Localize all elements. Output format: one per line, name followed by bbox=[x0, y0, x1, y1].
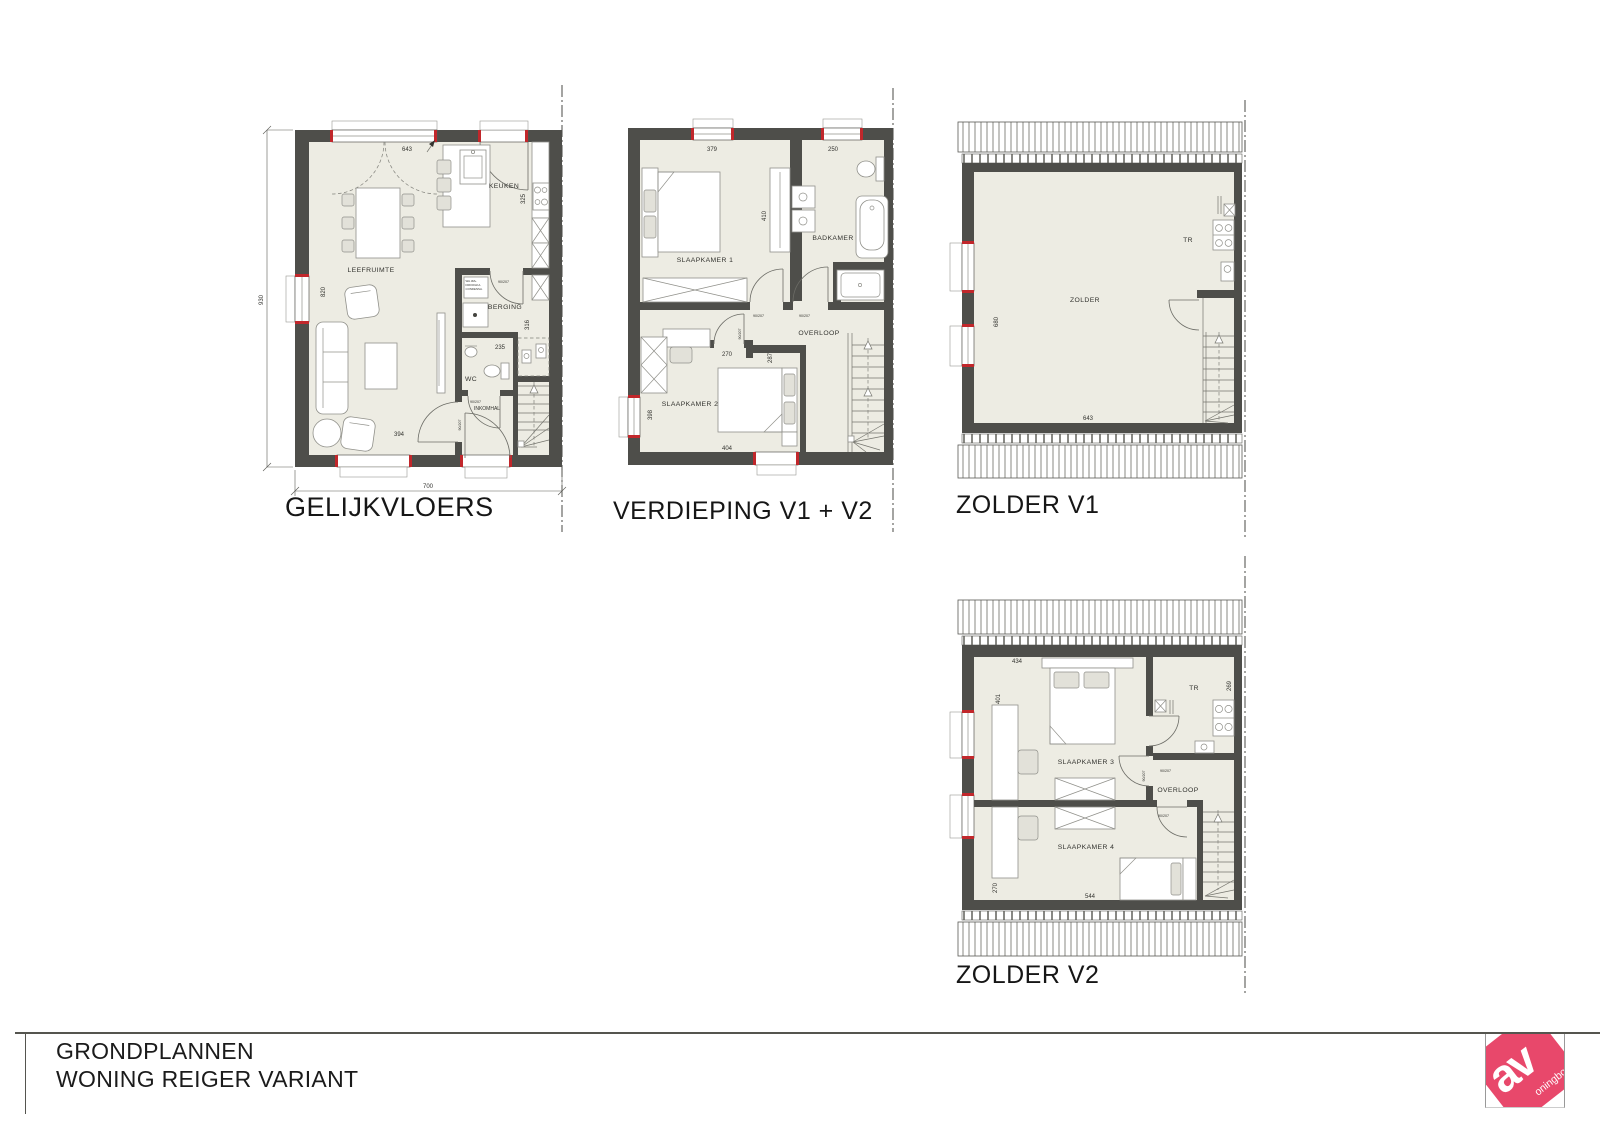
dim-325: 325 bbox=[521, 193, 527, 204]
door-size-label: 90/207 bbox=[753, 314, 764, 318]
room-label-slaapkamer1: SLAAPKAMER 1 bbox=[677, 257, 734, 264]
room-label-berging: BERGING bbox=[488, 304, 522, 311]
plan-title-zolder-v2: ZOLDER V2 bbox=[956, 961, 1099, 990]
logo-diamond: av oningbo bbox=[1485, 1034, 1565, 1108]
sheet-title: GRONDPLANNEN bbox=[56, 1038, 254, 1065]
door-size-label: 90/207 bbox=[1142, 771, 1146, 782]
dim-270: 270 bbox=[993, 882, 999, 893]
room-label-tr: TR bbox=[1183, 237, 1193, 244]
floor-plan-zolder-v1: ZOLDER TR 680 643 bbox=[945, 95, 1250, 545]
door-size-label: 90/207 bbox=[799, 314, 810, 318]
room-label-wc: WC bbox=[465, 376, 477, 383]
room-label-slaapkamer3: SLAAPKAMER 3 bbox=[1058, 759, 1115, 766]
plan-title-zolder-v1: ZOLDER V1 bbox=[956, 491, 1099, 520]
room-label-leefruimte: LEEFRUIMTE bbox=[347, 267, 394, 274]
dim-643: 643 bbox=[402, 147, 413, 153]
dim-434: 434 bbox=[1012, 659, 1023, 665]
room-label-inkomhal: INKOMHAL bbox=[474, 406, 500, 412]
door-size-label: 90/207 bbox=[458, 420, 462, 431]
door-size-label: 90/207 bbox=[1160, 769, 1171, 773]
dim-680: 680 bbox=[994, 316, 1000, 327]
room-label-tr: TR bbox=[1189, 685, 1199, 692]
slaapkamer4-furniture bbox=[1120, 858, 1196, 900]
dim-398: 398 bbox=[648, 409, 654, 420]
dim-401: 401 bbox=[996, 693, 1002, 704]
dim-316: 316 bbox=[525, 319, 531, 330]
dim-235: 235 bbox=[495, 345, 506, 351]
dim-544: 544 bbox=[1085, 894, 1096, 900]
dim-379: 379 bbox=[707, 147, 718, 153]
dim-287: 287 bbox=[768, 352, 774, 363]
plan-title-verdieping: VERDIEPING V1 + V2 bbox=[613, 497, 873, 526]
room-label-slaapkamer2: SLAAPKAMER 2 bbox=[662, 401, 719, 408]
drawing-sheet: LEEFRUIMTE KEUKEN BERGING WC INKOMHAL 64… bbox=[0, 0, 1600, 1131]
titleblock-left-rule bbox=[25, 1032, 26, 1114]
room-label-badkamer: BADKAMER bbox=[812, 235, 853, 242]
plan-title-gelijkvloers: GELIJKVLOERS bbox=[285, 492, 494, 523]
dim-404: 404 bbox=[722, 446, 733, 452]
dim-700: 700 bbox=[423, 484, 434, 490]
floor-plan-gelijkvloers: LEEFRUIMTE KEUKEN BERGING WC INKOMHAL 64… bbox=[250, 75, 580, 535]
door-size-label: 90/207 bbox=[498, 280, 509, 284]
dim-269: 269 bbox=[1227, 680, 1233, 691]
dim-270: 270 bbox=[722, 352, 733, 358]
dim-820: 820 bbox=[321, 286, 327, 297]
room-label-overloop: OVERLOOP bbox=[798, 330, 839, 337]
dim-394: 394 bbox=[394, 432, 405, 438]
room-label-keuken: KEUKEN bbox=[489, 183, 519, 190]
room-label-overloop: OVERLOOP bbox=[1157, 787, 1198, 794]
door-size-label: 90/207 bbox=[470, 400, 481, 404]
company-logo: av oningbo bbox=[1485, 1034, 1565, 1108]
floor-plan-zolder-v2: SLAAPKAMER 3 SLAAPKAMER 4 OVERLOOP TR 43… bbox=[945, 550, 1250, 1000]
room-label-zolder: ZOLDER bbox=[1070, 297, 1100, 304]
dim-250: 250 bbox=[828, 147, 839, 153]
dim-643: 643 bbox=[1083, 416, 1094, 422]
project-title: WONING REIGER VARIANT bbox=[56, 1066, 358, 1093]
floor-plan-verdieping: SLAAPKAMER 1 BADKAMER SLAAPKAMER 2 OVERL… bbox=[605, 80, 900, 540]
titleblock-divider bbox=[15, 1032, 1600, 1034]
dim-410: 410 bbox=[762, 210, 768, 221]
door-size-label: 90/207 bbox=[738, 329, 742, 340]
door-size-label: 90/207 bbox=[1158, 814, 1169, 818]
room-label-slaapkamer4: SLAAPKAMER 4 bbox=[1058, 844, 1115, 851]
washer-label: CONDENSA. bbox=[466, 287, 483, 291]
dim-930: 930 bbox=[259, 294, 265, 305]
